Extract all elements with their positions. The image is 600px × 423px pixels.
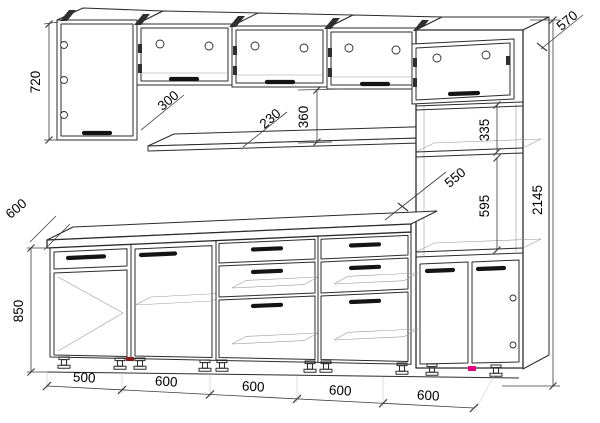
dim-600-label-4: 600 bbox=[417, 387, 440, 403]
dim-300-label: 300 bbox=[155, 88, 182, 114]
door-handle bbox=[427, 270, 453, 271]
drawer-handle bbox=[253, 271, 281, 272]
base-cabinet-1 bbox=[50, 245, 131, 359]
dim-600-label-3: 600 bbox=[329, 382, 352, 398]
adjustable-foot-icon bbox=[58, 357, 70, 368]
dim-335-label: 335 bbox=[477, 119, 492, 142]
drawer-handle bbox=[253, 305, 281, 306]
fixing-mark-dark-red bbox=[126, 357, 134, 361]
dim-360-label: 360 bbox=[296, 106, 311, 129]
base-cabinet-drawers-2 bbox=[318, 232, 418, 364]
dim-850-label: 850 bbox=[11, 300, 26, 323]
dim-600-label-1: 600 bbox=[155, 373, 178, 389]
drawing-canvas: 720 300 230 360 570 335 bbox=[0, 0, 600, 423]
adjustable-foot-icon bbox=[114, 358, 126, 369]
drawer-handle bbox=[351, 301, 379, 302]
adjustable-foot-icon bbox=[134, 358, 146, 369]
dim-2145-label: 2145 bbox=[530, 185, 545, 215]
dim-500-label: 500 bbox=[73, 369, 96, 385]
dim-595-label: 595 bbox=[477, 195, 492, 218]
dim-600-label-2: 600 bbox=[242, 378, 265, 394]
kitchen-assembly-drawing: 720 300 230 360 570 335 bbox=[0, 0, 600, 423]
door-handle bbox=[478, 268, 504, 269]
door-handle bbox=[141, 254, 175, 256]
base-cabinet-drawers-1 bbox=[216, 236, 318, 362]
flip-handle bbox=[450, 93, 478, 94]
tall-unit bbox=[412, 17, 549, 369]
drawer-handle bbox=[68, 256, 104, 258]
adjustable-foot-icon bbox=[199, 360, 211, 371]
dim-base-unit-height: 850 bbox=[11, 245, 48, 376]
dim-wall-cabinet-depth: 300 bbox=[141, 88, 184, 130]
adjustable-foot-icon bbox=[216, 360, 228, 371]
dim-570-label: 570 bbox=[554, 8, 581, 34]
wall-shelf bbox=[148, 126, 446, 151]
dim-width-chain: 500 600 600 600 600 bbox=[43, 369, 495, 412]
base-cabinet-2 bbox=[131, 241, 228, 361]
tall-unit-flip-door bbox=[412, 39, 514, 104]
drawer-handle bbox=[351, 244, 379, 245]
drawer-handle bbox=[351, 267, 379, 268]
dim-600-depth-label: 600 bbox=[3, 196, 30, 222]
fixing-mark-pink bbox=[468, 366, 476, 371]
dim-720-label: 720 bbox=[28, 71, 43, 94]
dim-wall-cabinet-height: 720 bbox=[28, 21, 58, 144]
dim-230-label: 230 bbox=[257, 106, 284, 132]
drawer-handle bbox=[253, 248, 281, 249]
